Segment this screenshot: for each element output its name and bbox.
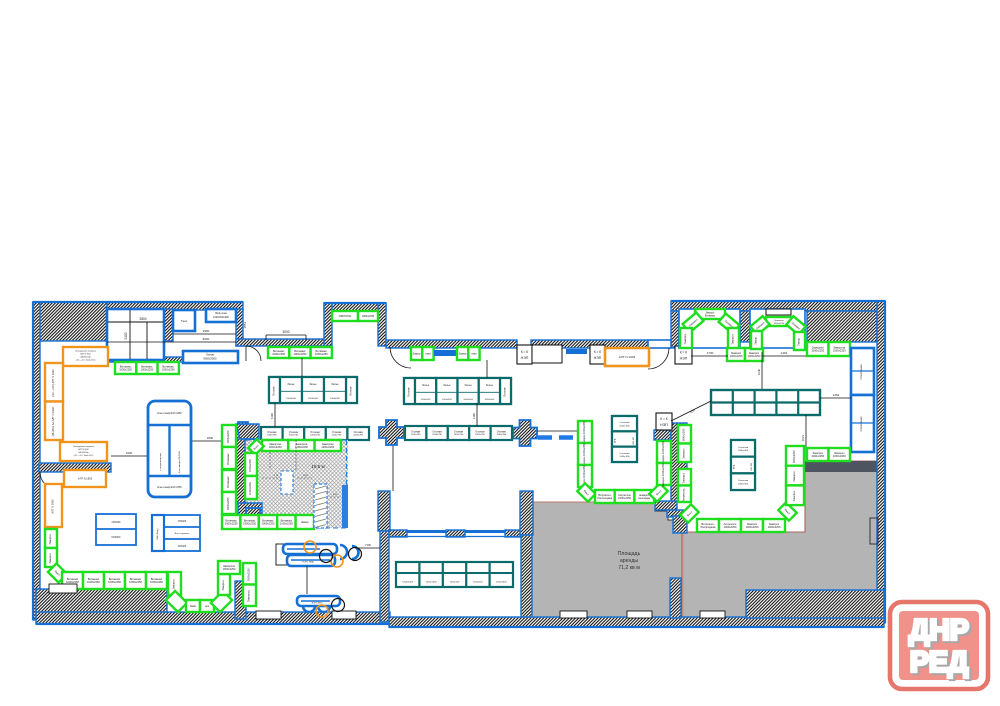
- svg-text:1000х 800: 1000х 800: [619, 456, 630, 458]
- svg-text:Замороз 1000х2250: Замороз 1000х2250: [661, 441, 665, 465]
- svg-text:Отсекам: Отсекам: [289, 432, 299, 434]
- svg-text:АЛТ N 1932: АЛТ N 1932: [80, 353, 90, 356]
- svg-text:АЛТ N 1933: АЛТ N 1933: [51, 499, 55, 514]
- svg-text:озка: озка: [425, 353, 431, 356]
- svg-text:3551: 3551: [243, 321, 247, 328]
- svg-text:СРА00С: СРА00С: [111, 536, 120, 539]
- svg-text:7100: 7100: [365, 543, 371, 547]
- svg-text:Витамакс: Витамакс: [226, 453, 230, 465]
- svg-text:3000: 3000: [282, 330, 289, 334]
- svg-text:РЕД: РЕД: [910, 647, 968, 679]
- svg-text:1000х2250: 1000х2250: [730, 354, 743, 358]
- svg-text:Замороз: Замороз: [683, 333, 687, 344]
- svg-text:Отсекам: Отсекам: [505, 387, 507, 397]
- svg-text:ТУБ: ТУБ: [733, 464, 736, 469]
- svg-text:1000х2250: 1000х2250: [108, 580, 121, 584]
- svg-text:1000х780: 1000х780: [432, 434, 442, 436]
- svg-text:К = К: К = К: [594, 350, 601, 354]
- svg-text:1000х2250: 1000х2250: [768, 525, 781, 529]
- svg-text:Стеллажи: Стеллажи: [619, 453, 630, 455]
- svg-text:Замороз: Замороз: [682, 472, 686, 483]
- svg-text:1000х780: 1000х780: [310, 435, 320, 437]
- svg-text:Отсекам: Отсекам: [433, 431, 443, 433]
- svg-text:1000х2250: 1000х2250: [225, 522, 238, 526]
- svg-text:1000х2250: 1000х2250: [119, 368, 132, 372]
- svg-text:Замороза: Замороза: [774, 320, 784, 322]
- svg-text:Вна старшина: Вна старшина: [175, 533, 190, 535]
- svg-text:К = К: К = К: [660, 417, 667, 421]
- svg-text:1000х 800: 1000х 800: [738, 483, 749, 485]
- svg-text:1000х500: 1000х500: [485, 399, 495, 401]
- svg-text:Витамакс: Витамакс: [226, 476, 230, 488]
- svg-text:Якф-зона: Якф-зона: [215, 311, 227, 315]
- svg-text:(-5С...+5С; Тамб+25С): (-5С...+5С; Тамб+25С): [74, 455, 94, 457]
- svg-text:белье: белье: [309, 382, 317, 386]
- svg-text:Отсекам: Отсекам: [332, 432, 342, 434]
- svg-text:1000 800: 1000 800: [633, 436, 635, 445]
- svg-text:Распродажа: Распродажа: [701, 525, 716, 529]
- svg-text:1000х2250: 1000х2250: [280, 522, 293, 526]
- svg-text:+ хоздоговорнода: + хоздоговорнода: [160, 452, 162, 471]
- svg-text:1000х2250: 1000х2250: [150, 580, 163, 584]
- svg-text:Замороз: Замороз: [792, 471, 796, 482]
- svg-text:1500: 1500: [126, 451, 133, 455]
- svg-text:1000х2250: 1000х2250: [87, 580, 100, 584]
- svg-text:АЛТ N 1933: АЛТ N 1933: [619, 355, 636, 359]
- svg-text:СРА000: СРА000: [178, 545, 187, 548]
- svg-text:Отсекам: Отсекам: [409, 387, 411, 397]
- svg-text:аренды: аренды: [620, 558, 639, 564]
- svg-text:1000х500: 1000х500: [286, 398, 296, 400]
- svg-text:Отсекам: Отсекам: [310, 432, 320, 434]
- svg-text:1491: 1491: [781, 351, 788, 355]
- svg-text:1000х2300: 1000х2300: [833, 454, 846, 458]
- svg-text:1000х2250: 1000х2250: [66, 580, 79, 584]
- svg-text:1000 800: 1000 800: [751, 462, 753, 471]
- svg-text:Стеллажи: Стеллажи: [738, 480, 749, 482]
- svg-text:НЭП: НЭП: [660, 423, 668, 427]
- svg-text:Завороз: Завороз: [706, 313, 715, 315]
- svg-text:ФОРТ-НЕШ: ФОРТ-НЕШ: [302, 561, 314, 564]
- svg-text:QB-2601 Ал: QB-2601 Ал: [80, 356, 90, 359]
- svg-text:1000х2250: 1000х2250: [272, 352, 285, 356]
- svg-text:1000х780: 1000х780: [454, 434, 464, 436]
- svg-text:(-5С...+5С) АЛТ N 1932: (-5С...+5С) АЛТ N 1932: [51, 369, 55, 397]
- svg-text:(-5С...+5С; Тамб+25С): (-5С...+5С; Тамб+25С): [76, 360, 96, 362]
- svg-text:белье: белье: [486, 383, 494, 387]
- svg-text:1000х1600: 1000х1600: [426, 582, 438, 584]
- svg-text:71,2 кв м: 71,2 кв м: [618, 565, 640, 571]
- svg-text:1800: 1800: [207, 436, 214, 440]
- svg-text:1000х780: 1000х780: [475, 434, 485, 436]
- svg-text:Замороз: Замороз: [221, 580, 225, 591]
- svg-text:19,5 м: 19,5 м: [311, 464, 324, 469]
- svg-text:ОФЛ70/021: ОФЛ70/021: [339, 315, 352, 318]
- svg-text:Замороз: Замороз: [731, 334, 735, 345]
- svg-text:1000х500: 1000х500: [330, 398, 340, 400]
- svg-text:1000х2250: 1000х2250: [746, 525, 759, 529]
- svg-text:белье: белье: [287, 382, 295, 386]
- svg-text:1000х500: 1000х500: [442, 399, 452, 401]
- svg-text:1200х1600: 1200х1600: [496, 582, 508, 584]
- svg-text:1000х2250: 1000х2250: [226, 497, 230, 510]
- svg-text:1200х2250: 1200х2250: [321, 445, 334, 449]
- svg-text:9000/2500: 9000/2500: [203, 357, 217, 361]
- svg-text:1200х160: 1200х160: [473, 582, 483, 584]
- svg-text:1000х2250: 1000х2250: [811, 349, 824, 353]
- svg-text:1,133: 1,133: [302, 475, 308, 477]
- svg-text:Замороз: Замороз: [682, 448, 686, 459]
- svg-text:ЕАБ (Вход): ЕАБ (Вход): [156, 528, 159, 539]
- svg-text:Стеллажи: Стеллажи: [619, 422, 630, 424]
- svg-text:1000х2250: 1000х2250: [262, 522, 275, 526]
- svg-text:1730: 1730: [707, 351, 714, 355]
- svg-text:1000х2250: 1000х2250: [811, 454, 824, 458]
- svg-text:Елес-шкаф ЕАО 1850: Елес-шкаф ЕАО 1850: [157, 412, 182, 415]
- svg-text:К = К: К = К: [521, 350, 528, 354]
- svg-text:Замороз: Замороз: [172, 579, 176, 590]
- svg-text:1000х2250: 1000х2250: [129, 580, 142, 584]
- svg-text:АЛТ N 1932: АЛТ N 1932: [78, 448, 88, 451]
- svg-text:Замор: Замор: [301, 520, 309, 524]
- svg-text:ФОРТ-НЕШ: ФОРТ-НЕШ: [312, 602, 323, 605]
- svg-text:Охлаждаемая полувана: Охлаждаемая полувана: [73, 446, 95, 448]
- svg-text:QB-2601 Ал: QB-2601 Ал: [78, 451, 88, 454]
- svg-text:Елес-шкафа ЕА 2500: Елес-шкафа ЕА 2500: [178, 450, 181, 473]
- svg-text:2960: 2960: [203, 329, 210, 333]
- svg-text:1000х1600: 1000х1600: [402, 582, 414, 584]
- svg-text:Замор: Замор: [797, 338, 801, 346]
- svg-text:Замороз: Замороз: [48, 534, 52, 545]
- svg-text:Отсекам: Отсекам: [497, 431, 507, 433]
- svg-text:Отсекам: Отсекам: [351, 386, 353, 396]
- svg-text:2400: 2400: [124, 332, 128, 339]
- svg-text:1000х780: 1000х780: [353, 435, 363, 437]
- svg-text:Замороза: Замороза: [247, 590, 251, 602]
- svg-text:Площадь: Площадь: [618, 551, 641, 557]
- svg-text:Отсекам: Отсекам: [267, 432, 277, 434]
- svg-text:Стеллажная: Стеллажная: [859, 416, 863, 431]
- svg-text:Охлаждаемая полувана: Охлаждаемая полувана: [75, 351, 97, 353]
- svg-text:1000х500: 1000х500: [463, 399, 473, 401]
- svg-text:1000х2250: 1000х2250: [247, 568, 251, 581]
- svg-text:Замор: Замор: [459, 352, 467, 356]
- svg-text:1000х2250: 1000х2250: [315, 352, 328, 356]
- svg-text:1640: 1640: [757, 368, 761, 375]
- svg-text:Елес-шкаф ЕАО 1850: Елес-шкаф ЕАО 1850: [157, 486, 182, 489]
- svg-text:белье: белье: [422, 383, 430, 387]
- svg-text:Отсекам: Отсекам: [354, 432, 364, 434]
- svg-text:Отсекам: Отсекам: [454, 431, 464, 433]
- svg-text:НЭП: НЭП: [680, 357, 688, 361]
- svg-text:озка: озка: [471, 353, 477, 356]
- svg-text:белье: белье: [465, 383, 473, 387]
- svg-text:1000х2250: 1000х2250: [141, 368, 154, 372]
- svg-text:1000х2250: 1000х2250: [833, 349, 846, 353]
- svg-text:QB-2601 Ал АЛТ N 1932: QB-2601 Ал АЛТ N 1932: [51, 407, 55, 437]
- svg-text:Отсекам: Отсекам: [475, 431, 485, 433]
- svg-text:Стеллажи: Стеллажи: [738, 447, 749, 449]
- svg-text:1000х2250: 1000х2250: [618, 496, 631, 500]
- svg-text:1000х780: 1000х780: [267, 435, 277, 437]
- svg-text:1190: 1190: [270, 413, 274, 419]
- svg-text:Замор: Замор: [754, 337, 758, 345]
- svg-text:Распродажа: Распродажа: [597, 496, 612, 500]
- svg-text:Замо: Замо: [190, 604, 197, 608]
- svg-text:НЭП: НЭП: [594, 356, 602, 360]
- svg-text:1000х2250: 1000х2250: [792, 450, 796, 463]
- svg-text:1000х780: 1000х780: [289, 435, 299, 437]
- svg-text:1000х780: 1000х780: [496, 434, 506, 436]
- svg-text:ДНР: ДНР: [909, 615, 969, 647]
- svg-text:1000х2250: 1000х2250: [243, 522, 256, 526]
- svg-text:1000х780: 1000х780: [411, 434, 421, 436]
- svg-text:белье: белье: [331, 382, 339, 386]
- svg-text:1000х2250: 1000х2250: [682, 428, 686, 441]
- svg-text:НЭП: НЭП: [521, 356, 529, 360]
- svg-text:СРА000: СРА000: [112, 521, 121, 524]
- svg-text:1000х2250: 1000х2250: [724, 525, 737, 529]
- svg-text:1000х2250: 1000х2250: [774, 323, 785, 325]
- svg-text:выкладка: выкладка: [638, 497, 650, 500]
- svg-text:Тэнс: Тэнс: [181, 319, 188, 323]
- svg-text:1000х500: 1000х500: [421, 399, 431, 401]
- svg-text:К = К: К = К: [680, 351, 687, 355]
- svg-text:Антресоль: Антресоль: [682, 488, 686, 501]
- svg-text:Витамакс: Витамакс: [705, 316, 716, 318]
- svg-text:1000х2250: 1000х2250: [223, 567, 236, 571]
- svg-text:1521: 1521: [801, 434, 805, 441]
- svg-text:1000х2250: 1000х2250: [248, 459, 252, 472]
- svg-text:6060: 6060: [203, 337, 210, 341]
- svg-text:1452: 1452: [833, 393, 840, 397]
- svg-text:1000х 800: 1000х 800: [619, 425, 630, 427]
- svg-text:1000х2/250: 1000х2/250: [362, 315, 375, 318]
- svg-text:1000х2250: 1000х2250: [226, 430, 230, 443]
- svg-text:1200х2250: 1200х2250: [295, 445, 308, 449]
- svg-text:Отсекам: Отсекам: [411, 431, 421, 433]
- svg-text:белье: белье: [443, 383, 451, 387]
- svg-text:2800: 2800: [139, 317, 146, 321]
- svg-text:ТУБ: ТУБ: [614, 438, 617, 443]
- svg-text:Замороз: Замороз: [48, 553, 52, 564]
- svg-text:СРА000: СРА000: [178, 520, 187, 523]
- svg-text:АЛТ N 1933: АЛТ N 1933: [78, 477, 93, 481]
- svg-text:Замороз 1000х2250: Замороз 1000х2250: [582, 443, 586, 467]
- svg-text:1000х160: 1000х160: [450, 582, 460, 584]
- svg-text:Замор: Замор: [413, 352, 421, 356]
- svg-text:Замороз: Замороз: [792, 490, 796, 501]
- svg-text:1000х 800: 1000х 800: [738, 450, 749, 452]
- svg-text:1000х2250: 1000х2250: [248, 482, 252, 495]
- svg-text:Замороз 1000х2250: Замороз 1000х2250: [661, 463, 665, 487]
- svg-text:1000х780: 1000х780: [332, 435, 342, 437]
- svg-text:1000х2250: 1000х2250: [748, 354, 761, 358]
- svg-text:Стеллажная: Стеллажная: [859, 364, 863, 379]
- svg-text:1000х500: 1000х500: [308, 398, 318, 400]
- svg-text:Замороз 1000х2250: Замороз 1000х2250: [582, 421, 586, 445]
- svg-text:1000х600х600: 1000х600х600: [213, 316, 229, 319]
- svg-text:1190: 1190: [472, 413, 476, 419]
- svg-text:1000х2250: 1000х2250: [294, 352, 307, 356]
- svg-text:1000х2250: 1000х2250: [162, 368, 175, 372]
- svg-text:1200х2250: 1200х2250: [269, 445, 282, 449]
- svg-text:Отсекам: Отсекам: [274, 386, 276, 396]
